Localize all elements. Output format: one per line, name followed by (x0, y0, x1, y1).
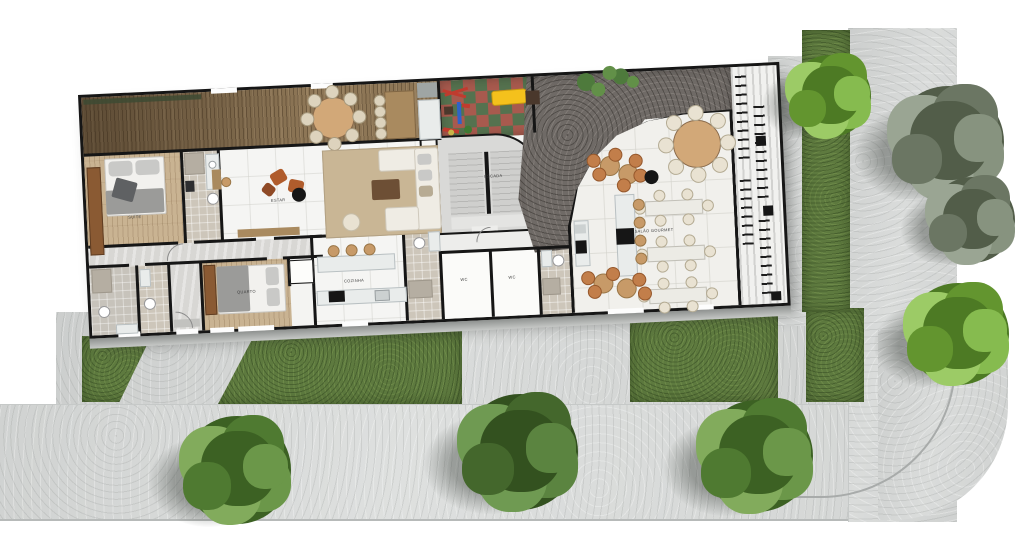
bike-rack-row (739, 174, 753, 244)
room-label: QUARTO (237, 290, 256, 295)
bike-rack-row (758, 214, 773, 294)
furniture-rect (575, 224, 586, 234)
furniture-rect (108, 161, 133, 177)
tree (904, 280, 1012, 388)
room-wc1 (441, 251, 492, 319)
furniture-rect (444, 106, 453, 114)
tree-foliage (462, 443, 514, 495)
furniture-rect (116, 323, 138, 334)
room-label: ESTAR (271, 198, 286, 203)
stair-flight (448, 152, 485, 216)
yellow-bench (491, 88, 527, 106)
furniture-rect (385, 206, 420, 232)
furniture-rect (462, 103, 470, 108)
tree (786, 52, 874, 140)
tree (697, 396, 817, 516)
furniture-rect (763, 205, 773, 215)
room-label: WC (508, 275, 515, 280)
tree-foliage (701, 448, 751, 498)
furniture-rect (419, 185, 434, 197)
furniture-rect (329, 291, 346, 303)
furniture-rect (265, 267, 279, 286)
furniture-rect (616, 228, 635, 245)
furniture-rect (185, 181, 195, 192)
bike-rack (756, 136, 766, 146)
furniture-rect (418, 169, 433, 181)
room-label: ESCADA (484, 174, 502, 179)
furniture-rect (542, 277, 561, 295)
tree-foliage (929, 214, 968, 253)
furniture-rect (428, 231, 441, 252)
grass-patch (218, 330, 462, 404)
tree (926, 174, 1018, 266)
furniture-rect (203, 265, 217, 316)
furniture-rect (91, 269, 112, 294)
tree (458, 390, 582, 514)
furniture-rect (541, 250, 553, 267)
building-floor-plan: SUÍTEESTARQUARTOCOZINHAWCWCESCADASALÃO G… (78, 62, 791, 339)
window-gap (176, 329, 198, 335)
tree-foliage (243, 444, 289, 490)
tree (180, 413, 294, 527)
furniture-rect (575, 240, 587, 254)
tree-foliage (834, 76, 869, 111)
deck-counter (418, 99, 442, 140)
coffee-table (371, 179, 400, 200)
tree-foliage (963, 309, 1006, 352)
deck-cabinet (417, 82, 438, 98)
tree-foliage (763, 428, 811, 476)
furniture-rect (417, 153, 432, 165)
furniture-rect (184, 152, 205, 175)
furniture-rect (289, 259, 314, 284)
tree-foliage (977, 199, 1014, 236)
room-label: WC (460, 278, 467, 283)
deck-table (384, 90, 416, 139)
furniture-rect (771, 291, 781, 300)
dining-table (647, 245, 706, 263)
tree-foliage (183, 462, 231, 510)
furniture-rect (139, 269, 151, 287)
furniture-rect (408, 280, 433, 299)
room-label: SUÍTE (128, 215, 141, 220)
site-plan-rendering: SUÍTEESTARQUARTOCOZINHAWCWCESCADASALÃO G… (0, 0, 1024, 547)
tree-foliage (526, 423, 576, 473)
play-mat (525, 90, 540, 105)
tree-foliage (789, 90, 826, 127)
furniture-rect (135, 159, 160, 175)
bike-rack-row (735, 73, 750, 159)
dining-table (645, 199, 704, 217)
furniture-rect (212, 169, 222, 189)
room-label: COZINHA (344, 279, 364, 284)
room-wc2 (491, 249, 540, 317)
dining-table (649, 287, 708, 305)
furniture-rect (266, 288, 280, 307)
tree-foliage (954, 114, 1002, 162)
tree-foliage (907, 326, 952, 371)
furniture-rect (375, 290, 391, 302)
